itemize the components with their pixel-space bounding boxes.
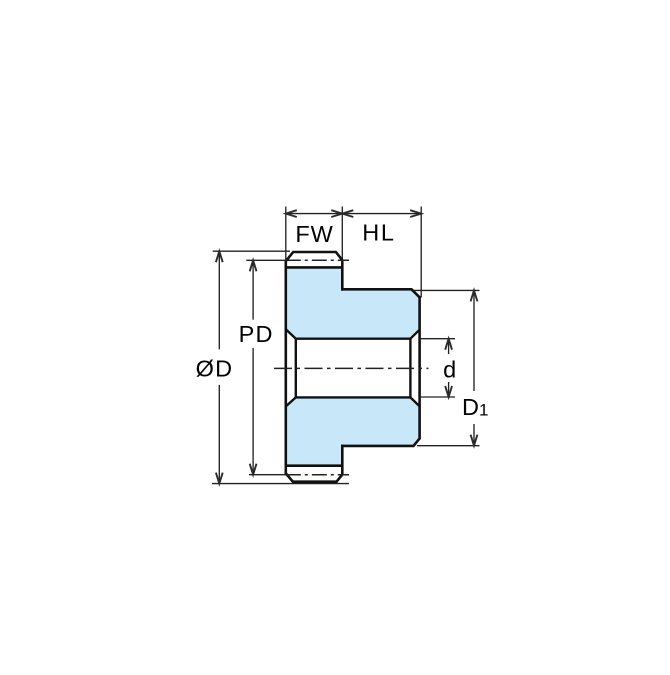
svg-text:FW: FW xyxy=(295,221,333,247)
svg-text:PD: PD xyxy=(239,321,274,347)
svg-text:HL: HL xyxy=(362,219,395,245)
svg-text:d: d xyxy=(443,357,456,383)
svg-text:ØD: ØD xyxy=(196,355,234,381)
